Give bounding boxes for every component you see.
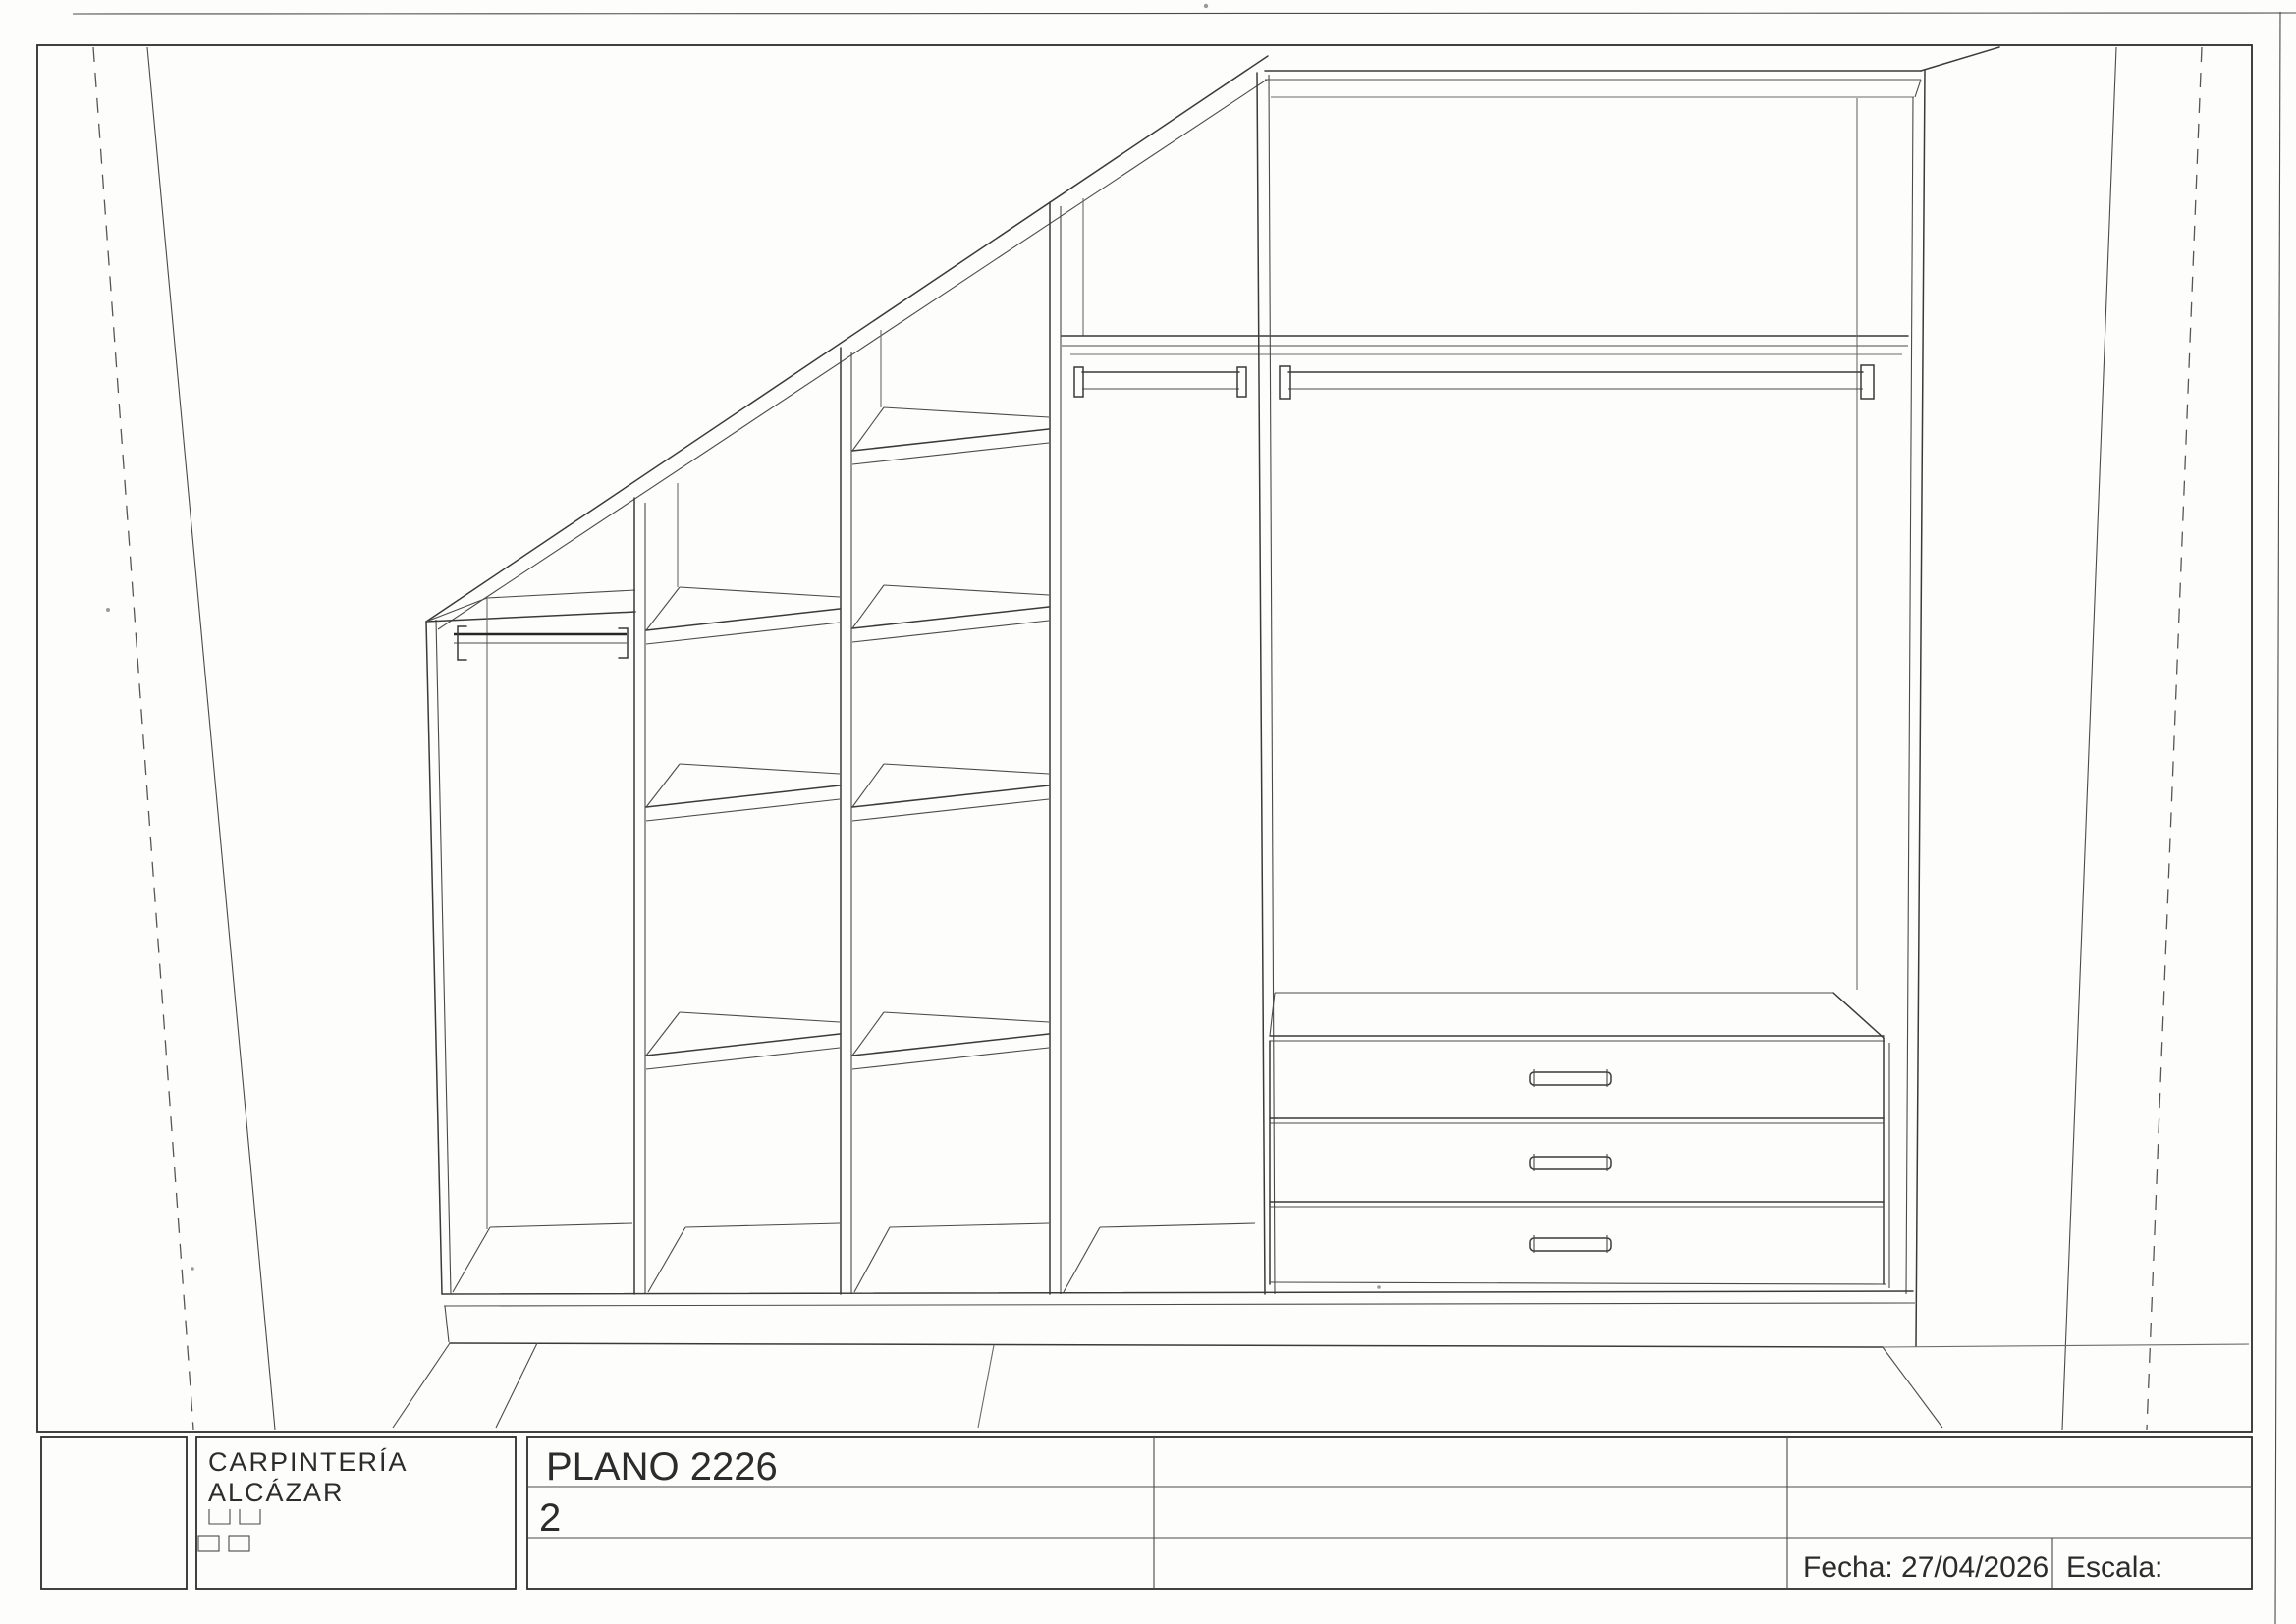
- scan-speckle: [106, 608, 110, 612]
- title-block-empty-box: [41, 1437, 187, 1589]
- upper-shelf-bays-4-5: [1062, 336, 1908, 354]
- bay4-floor-back-edge: [1100, 1223, 1255, 1227]
- left-end-panel: [426, 590, 635, 1294]
- drawer-handle-3: [1530, 1235, 1611, 1253]
- paper-edges: [73, 4, 2296, 1624]
- bay3-floor-back-edge: [890, 1223, 1049, 1227]
- base-and-plinth: [393, 1291, 2249, 1428]
- scale-label: Escala:: [2066, 1551, 2162, 1584]
- scan-speckle: [1204, 4, 1208, 8]
- drawer-handle-1: [1530, 1069, 1611, 1087]
- right-wall-dashed-line: [2147, 47, 2202, 1430]
- bay1-floor-back-edge: [490, 1223, 632, 1227]
- drawer-handle-2: [1530, 1154, 1611, 1171]
- title-block: CARPINTERÍA ALCÁZAR PLANO 2226 2 Fecha: …: [41, 1437, 2252, 1589]
- right-wall-line: [2062, 47, 2116, 1430]
- company-name-line2: ALCÁZAR: [208, 1478, 345, 1507]
- room-wall-lines: [93, 47, 2202, 1430]
- wardrobe-carcass: [393, 47, 2249, 1428]
- bay3-shelf-section: [852, 330, 1049, 1292]
- carcass-bottom-edge: [442, 1291, 1913, 1294]
- bay2-shelf-section: [646, 483, 840, 1292]
- left-wall-dashed-line: [93, 47, 193, 1430]
- company-name-line1: CARPINTERÍA: [208, 1447, 409, 1477]
- bay5-rail-right-bracket: [1861, 365, 1874, 399]
- ceiling-slope-line: [426, 56, 1268, 622]
- scan-speckle: [191, 1267, 194, 1271]
- divider-2-3: [841, 348, 851, 1294]
- sloped-ceiling-lines: [426, 56, 1268, 629]
- drawer-unit: [1270, 993, 1889, 1288]
- scanned-drawing-page: CARPINTERÍA ALCÁZAR PLANO 2226 2 Fecha: …: [0, 0, 2296, 1624]
- divider-4-5: [1257, 73, 1275, 1294]
- date-label: Fecha: 27/04/2026: [1803, 1551, 2049, 1584]
- divider-3-4: [1050, 202, 1061, 1294]
- scan-speckle: [1377, 1285, 1381, 1289]
- bay1-hanging-section: [453, 626, 632, 1292]
- floor-seam-line: [978, 1345, 994, 1428]
- sheet-number: 2: [539, 1496, 561, 1540]
- company-logo-squares: [198, 1509, 260, 1551]
- right-end-panel: [1906, 71, 1925, 1346]
- bay2-floor-back-edge: [685, 1223, 840, 1227]
- plinth-front-edge: [450, 1343, 1883, 1347]
- bay4-hanging-section: [1064, 198, 1255, 1292]
- divider-1-2: [634, 498, 645, 1294]
- top-right-corner-diagonal: [1921, 47, 1999, 71]
- wardrobe-elevation-drawing: CARPINTERÍA ALCÁZAR PLANO 2226 2 Fecha: …: [0, 0, 2296, 1624]
- plan-title: PLANO 2226: [546, 1445, 778, 1489]
- bay5-main-section: [1265, 47, 1999, 990]
- bay5-rail-left-bracket: [1280, 366, 1290, 399]
- left-wall-line: [147, 47, 275, 1430]
